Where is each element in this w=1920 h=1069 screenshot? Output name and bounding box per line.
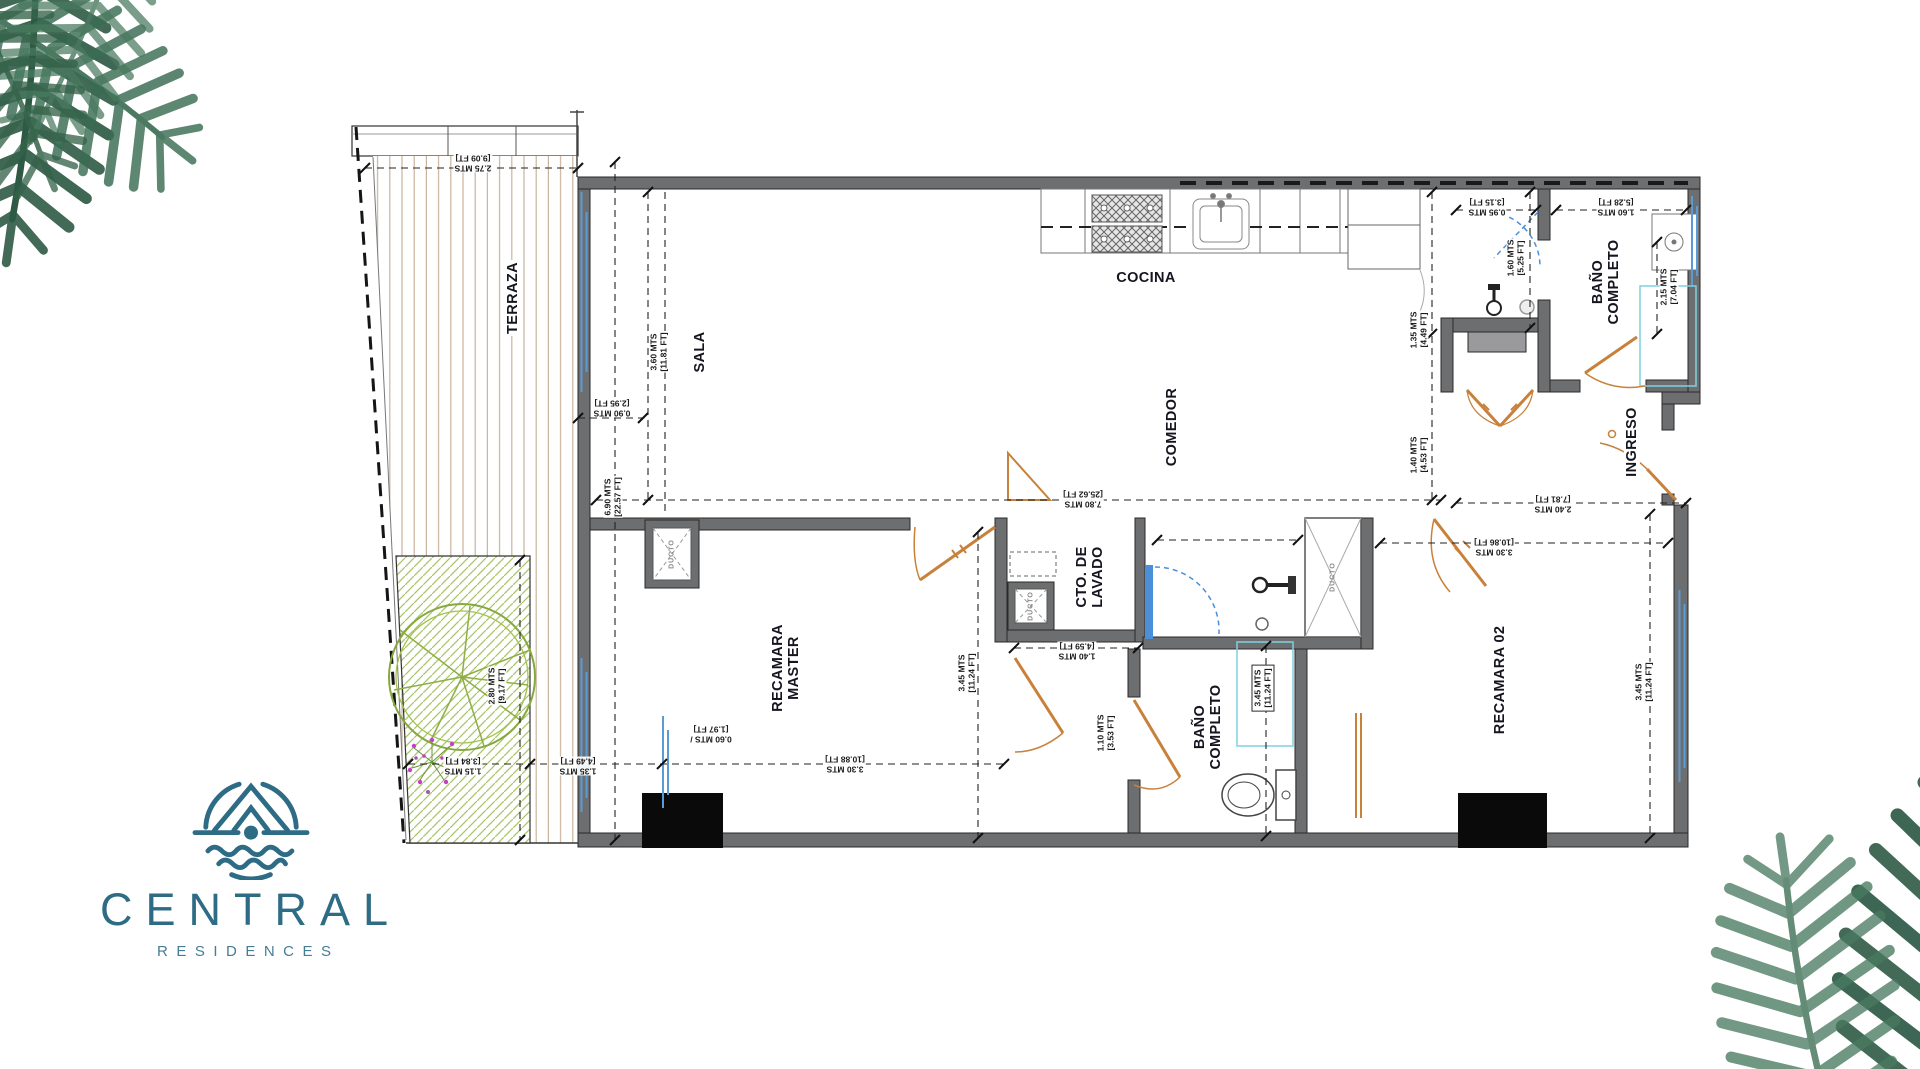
dimension-label: 1.40 MTS[4.53 FT] [1409, 436, 1428, 475]
fridge-icon [1348, 189, 1424, 328]
room-label-line: MASTER [786, 624, 802, 712]
duct-label: DUCTO [1028, 591, 1035, 621]
dimension-label: 1.15 MTS[3.84 FT] [444, 756, 483, 775]
duct-label: DUCTO [1330, 562, 1337, 592]
dimension-label: 0.95 MTS[3.15 FT] [1468, 197, 1507, 216]
dimension-label: 1.35 MTS[4.49 FT] [559, 756, 598, 775]
dimension-label: 1.60 MTS[5.28 FT] [1597, 197, 1636, 216]
dimension-label: 7.80 MTS[25.62 FT] [1062, 489, 1104, 508]
room-label-bano-completo-top: BAÑO COMPLETO [1590, 237, 1622, 326]
room-label-line: BAÑO [1590, 239, 1606, 324]
room-label-cocina: COCINA [1114, 270, 1178, 286]
garden-area [389, 556, 535, 843]
dimension-label: 3.30 MTS[10.86 FT] [1473, 537, 1515, 556]
room-label-line: CTO. DE [1074, 546, 1090, 607]
dimension-label: 6.90 MTS[22.57 FT] [603, 476, 622, 518]
floorplan-screenshot: TERRAZA SALA COCINA COMEDOR BAÑO COMPLET… [0, 0, 1920, 1069]
dimension-label: 3.45 MTS[11.24 FT] [1634, 661, 1653, 702]
kitchen-sink-icon [1193, 194, 1249, 250]
room-label-recamara-master: RECAMARA MASTER [770, 622, 802, 714]
dimension-label: 3.45 MTS[11.24 FT] [957, 652, 976, 693]
dimension-label: 0.90 MTS[2.95 FT] [593, 398, 632, 417]
dimension-label: 1.40 MTS[4.59 FT] [1058, 641, 1097, 660]
dimension-label: 2.40 MTS[7.81 FT] [1534, 494, 1573, 513]
dimension-label: 3.45 MTS[11.24 FT] [1251, 664, 1274, 711]
room-label-line: COMPLETO [1208, 684, 1224, 769]
dimension-label: 3.60 MTS[11.81 FT] [649, 331, 668, 372]
washer-icon [1010, 552, 1056, 576]
dimension-label: 2.75 MTS[9.09 FT] [454, 153, 493, 172]
room-label-comedor: COMEDOR [1164, 386, 1180, 469]
dimension-label: 3.30 MTS[10.88 FT] [824, 754, 866, 773]
room-label-bano-completo-bottom: BAÑO COMPLETO [1192, 682, 1224, 771]
room-label-line: LAVADO [1090, 546, 1106, 607]
kitchen-counter [1041, 189, 1424, 328]
dimension-label: 1.35 MTS[4.49 FT] [1409, 311, 1428, 350]
dimension-label: 0.60 MTS /[1.97 FT] [689, 724, 733, 743]
room-label-line: RECAMARA [770, 624, 786, 712]
room-label-line: COMPLETO [1606, 239, 1622, 324]
brand-name: CENTRAL [86, 884, 402, 936]
brand-subtitle: RESIDENCES [86, 943, 402, 960]
room-label-cto-lavado: CTO. DE LAVADO [1074, 544, 1106, 609]
room-label-line: BAÑO [1192, 684, 1208, 769]
dimension-label: 1.60 MTS[5.25 FT] [1506, 239, 1525, 278]
room-label-recamara-02: RECAMARA 02 [1492, 624, 1508, 737]
dimension-label: 2.15 MTS[7.04 FT] [1659, 268, 1678, 307]
room-label-sala: SALA [692, 329, 708, 374]
dimension-label: 2.80 MTS[9.17 FT] [487, 667, 506, 706]
dimension-label: 1.10 MTS[3.53 FT] [1096, 714, 1115, 753]
stove-icon [1092, 195, 1162, 252]
room-label-terraza: TERRAZA [505, 260, 521, 336]
room-label-ingreso: INGRESO [1624, 405, 1640, 479]
brand-logo-icon [183, 768, 319, 880]
duct-label: DUCTO [669, 539, 676, 569]
